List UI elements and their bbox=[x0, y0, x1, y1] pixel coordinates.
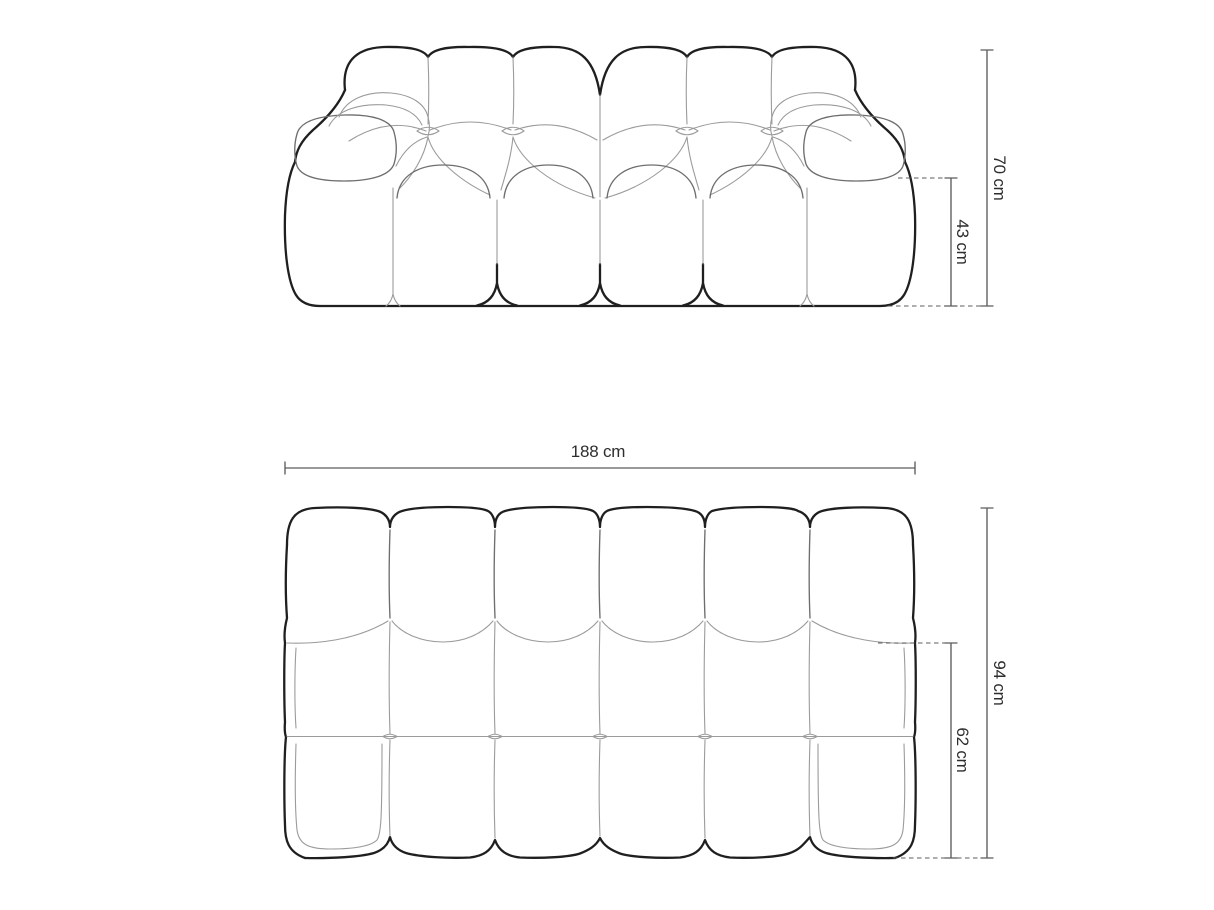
overall-height-dimension-label: 70 cm bbox=[990, 155, 1009, 200]
overall-depth-dimension-label: 94 cm bbox=[990, 660, 1009, 705]
diagram-canvas: 188 cm 70 cm 43 cm 94 cm 62 cm bbox=[0, 0, 1214, 910]
front-seat-feet-pinches bbox=[477, 264, 723, 306]
top-back-cushion-sides bbox=[389, 530, 810, 618]
seat-depth-dimension-label: 62 cm bbox=[953, 727, 972, 772]
width-dimension-line bbox=[285, 462, 915, 475]
top-front-edge-outline bbox=[305, 837, 895, 858]
front-left-silhouette bbox=[285, 90, 345, 306]
width-dimension-label: 188 cm bbox=[571, 442, 626, 461]
front-right-silhouette bbox=[855, 90, 915, 306]
front-left-armrest-pill bbox=[295, 115, 397, 181]
sofa-dimension-diagram: 188 cm 70 cm 43 cm 94 cm 62 cm bbox=[0, 0, 1214, 910]
front-right-armrest-pill bbox=[804, 115, 906, 181]
front-seat-boundaries bbox=[386, 188, 814, 306]
front-view-drawing bbox=[285, 47, 915, 306]
top-vertical-seams bbox=[389, 622, 810, 838]
front-back-cushions-outline bbox=[345, 47, 856, 95]
top-view-drawing bbox=[284, 507, 916, 858]
seat-height-dimension-label: 43 cm bbox=[953, 219, 972, 264]
